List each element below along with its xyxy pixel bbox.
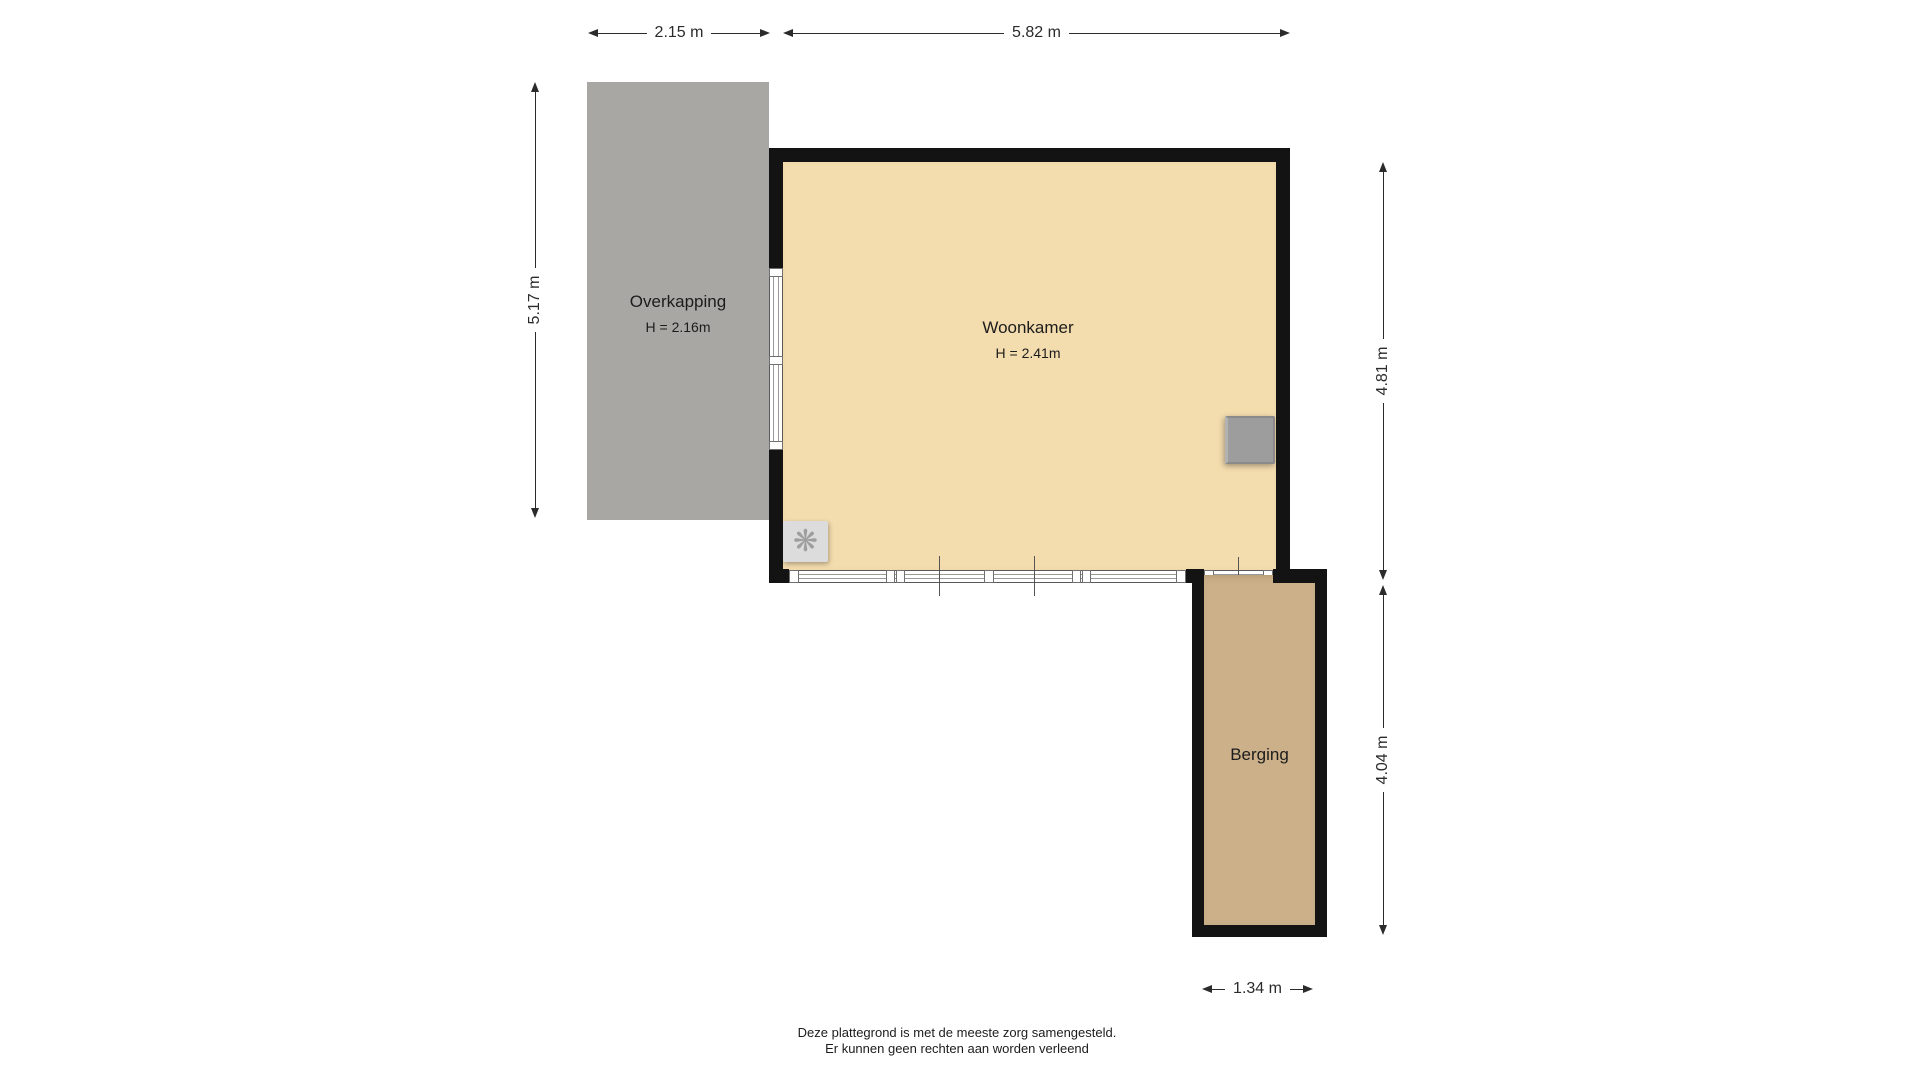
window-segment-tick xyxy=(1034,556,1035,596)
arrow-down-icon xyxy=(1379,925,1387,935)
woonkamer-wall-left-lower xyxy=(769,450,783,583)
dimension-label: 5.82 m xyxy=(1004,23,1069,43)
berging-wall-right xyxy=(1315,569,1327,937)
berging-wall-left xyxy=(1192,569,1204,937)
dimension-label: 5.17 m xyxy=(525,268,545,333)
dimension-label: 4.04 m xyxy=(1373,728,1393,793)
dimension-line xyxy=(1069,33,1280,34)
room-berging-labels: Berging xyxy=(1204,745,1315,765)
dimension-top-overkapping: 2.15 m xyxy=(588,23,770,43)
arrow-up-icon xyxy=(1379,585,1387,595)
window-mullion-icon xyxy=(984,570,994,583)
dimension-line xyxy=(711,33,760,34)
woonkamer-wall-right xyxy=(1276,148,1290,583)
window-mullion-icon xyxy=(896,570,905,583)
woonkamer-wall-bottom-left-post xyxy=(769,569,789,583)
berging-wall-top-right xyxy=(1273,569,1327,583)
dimension-label: 2.15 m xyxy=(647,23,712,43)
dimension-line xyxy=(1383,172,1384,339)
room-berging-label: Berging xyxy=(1204,745,1315,765)
arrow-up-icon xyxy=(1379,162,1387,172)
dimension-line xyxy=(1383,595,1384,728)
window-mullion-icon xyxy=(1082,570,1091,583)
dimension-label: 4.81 m xyxy=(1373,339,1393,404)
dimension-left-overkapping: 5.17 m xyxy=(525,82,545,518)
fan-glyph-icon: ❋ xyxy=(793,527,818,557)
arrow-down-icon xyxy=(531,508,539,518)
dimension-line xyxy=(535,332,536,508)
ventilation-unit-icon: ❋ xyxy=(783,521,828,562)
dimension-label: 1.34 m xyxy=(1225,979,1290,999)
window-segment-tick xyxy=(939,556,940,596)
window-mullion-icon xyxy=(1072,570,1081,583)
room-woonkamer-height-label: H = 2.41m xyxy=(783,344,1273,362)
arrow-left-icon xyxy=(783,29,793,37)
window-mullion-icon xyxy=(769,268,783,277)
dimension-line xyxy=(598,33,647,34)
room-woonkamer-labels: Woonkamer H = 2.41m xyxy=(783,318,1273,362)
dimension-line xyxy=(1383,403,1384,570)
room-overkapping-height-label: H = 2.16m xyxy=(587,318,769,336)
dimension-bottom-berging: 1.34 m xyxy=(1202,979,1313,999)
floorplan-canvas: Overkapping H = 2.16m Woonkamer H = 2.41… xyxy=(0,0,1920,1080)
berging-wall-bottom xyxy=(1192,925,1327,937)
arrow-left-icon xyxy=(588,29,598,37)
room-overkapping-label: Overkapping xyxy=(587,292,769,312)
dimension-line xyxy=(793,33,1004,34)
dimension-line xyxy=(535,92,536,268)
arrow-down-icon xyxy=(1379,570,1387,580)
window-mullion-icon xyxy=(769,356,783,365)
woonkamer-wall-top xyxy=(769,148,1290,162)
dimension-top-woonkamer: 5.82 m xyxy=(783,23,1290,43)
room-overkapping-labels: Overkapping H = 2.16m xyxy=(587,292,769,336)
disclaimer: Deze plattegrond is met de meeste zorg s… xyxy=(563,1025,1351,1057)
arrow-left-icon xyxy=(1202,985,1212,993)
arrow-up-icon xyxy=(531,82,539,92)
window-mullion-icon xyxy=(886,570,895,583)
dimension-line xyxy=(1290,989,1303,990)
appliance-box-icon xyxy=(1225,416,1275,464)
window-mullion-icon xyxy=(1176,570,1186,583)
woonkamer-wall-left-upper xyxy=(769,148,783,268)
window-mullion-icon xyxy=(769,441,783,450)
disclaimer-line-1: Deze plattegrond is met de meeste zorg s… xyxy=(563,1025,1351,1041)
dimension-line xyxy=(1212,989,1225,990)
disclaimer-line-2: Er kunnen geen rechten aan worden verlee… xyxy=(563,1041,1351,1057)
window-mullion-icon xyxy=(789,570,799,583)
dimension-right-berging: 4.04 m xyxy=(1373,585,1393,935)
dimension-right-woonkamer: 4.81 m xyxy=(1373,162,1393,580)
dimension-line xyxy=(1383,792,1384,925)
arrow-right-icon xyxy=(1280,29,1290,37)
room-woonkamer-label: Woonkamer xyxy=(783,318,1273,338)
room-woonkamer xyxy=(776,155,1283,576)
arrow-right-icon xyxy=(1303,985,1313,993)
arrow-right-icon xyxy=(760,29,770,37)
